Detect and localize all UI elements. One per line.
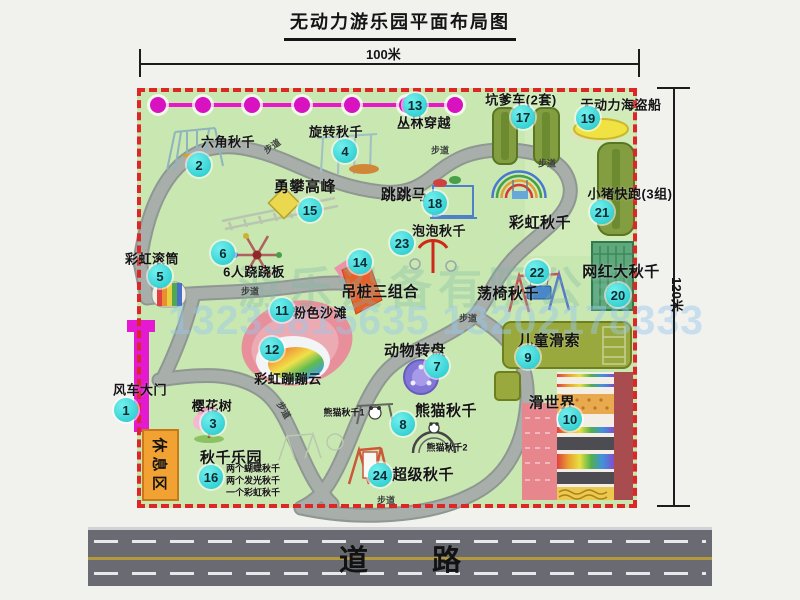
label-hexagon-swing: 六角秋千	[201, 132, 255, 151]
road: 道路	[88, 527, 712, 586]
marker-2: 2	[187, 153, 211, 177]
marker-7: 7	[425, 354, 449, 378]
title-wrap: 无动力游乐园平面布局图	[0, 8, 800, 41]
marker-9: 9	[516, 345, 540, 369]
label-pink-beach: 粉色沙滩	[293, 303, 347, 322]
width-dimension-tick-right	[638, 49, 640, 77]
label-windmill-gate: 风车大门	[113, 380, 167, 399]
marker-19: 19	[576, 106, 600, 130]
label-panda-swing-1: 熊猫秋千1	[323, 406, 364, 419]
path-label-7: 步道	[377, 494, 395, 507]
height-dimension-tick-top	[657, 87, 690, 89]
width-dimension-tick-left	[139, 49, 141, 77]
marker-17: 17	[511, 105, 535, 129]
label-bubble-swing: 泡泡秋千	[412, 221, 466, 240]
marker-22: 22	[525, 260, 549, 284]
marker-11: 11	[270, 298, 294, 322]
page-title: 无动力游乐园平面布局图	[284, 8, 516, 41]
height-dimension-tick-bottom	[657, 505, 690, 507]
label-six-person-seesaw: 6人跷跷板	[223, 262, 285, 281]
path-label-4: 步道	[241, 285, 259, 298]
marker-13: 13	[403, 93, 427, 117]
marker-10: 10	[558, 407, 582, 431]
width-dimension-label: 100米	[366, 44, 401, 63]
width-dimension-line	[140, 63, 639, 65]
marker-5: 5	[148, 264, 172, 288]
height-dimension-label: 120米	[668, 277, 687, 312]
label-rotating-swing: 旋转秋千	[309, 122, 363, 141]
label-jungle-crossing: 丛林穿越	[397, 113, 451, 132]
path-label-3: 步道	[538, 157, 556, 170]
label-big-swing: 网红大秋千	[582, 261, 660, 282]
label-swing-chair: 荡椅秋千	[477, 283, 539, 304]
marker-6: 6	[211, 241, 235, 265]
marker-14: 14	[348, 250, 372, 274]
label-jumping-horse: 跳跳马	[381, 184, 428, 205]
marker-23: 23	[390, 231, 414, 255]
label-panda-swing-2: 熊猫秋千2	[426, 441, 467, 454]
marker-4: 4	[333, 139, 357, 163]
bubble-swing-icon	[410, 240, 456, 273]
marker-18: 18	[423, 191, 447, 215]
marker-15: 15	[298, 198, 322, 222]
playground-plan-screenshot: 无动力游乐园平面布局图 100米 120米	[0, 0, 800, 600]
label-peak-climbing: 勇攀高峰	[274, 176, 336, 197]
label-hanging-piles: 吊桩三组合	[341, 281, 419, 302]
marker-16: 16	[199, 465, 223, 489]
marker-8: 8	[391, 412, 415, 436]
marker-24: 24	[368, 463, 392, 487]
rest-area-label: 休息区	[150, 437, 171, 494]
road-label: 道路	[275, 537, 525, 579]
marker-20: 20	[606, 283, 630, 307]
label-rainbow-roller: 彩虹滚筒	[125, 249, 179, 268]
marker-3: 3	[201, 411, 225, 435]
label-rainbow-bouncing-cloud: 彩虹蹦蹦云	[254, 369, 322, 388]
label-rainbow-swing-area: 彩虹秋千	[509, 212, 571, 233]
label-super-swing: 超级秋千	[392, 464, 454, 485]
marker-1: 1	[114, 398, 138, 422]
path-label-5: 步道	[459, 312, 477, 325]
swing-park-item-3: 一个彩虹秋千	[226, 486, 280, 499]
marker-12: 12	[260, 337, 284, 361]
label-panda-swing: 熊猫秋千	[415, 400, 477, 421]
marker-21: 21	[590, 200, 614, 224]
path-label-2: 步道	[431, 144, 449, 157]
